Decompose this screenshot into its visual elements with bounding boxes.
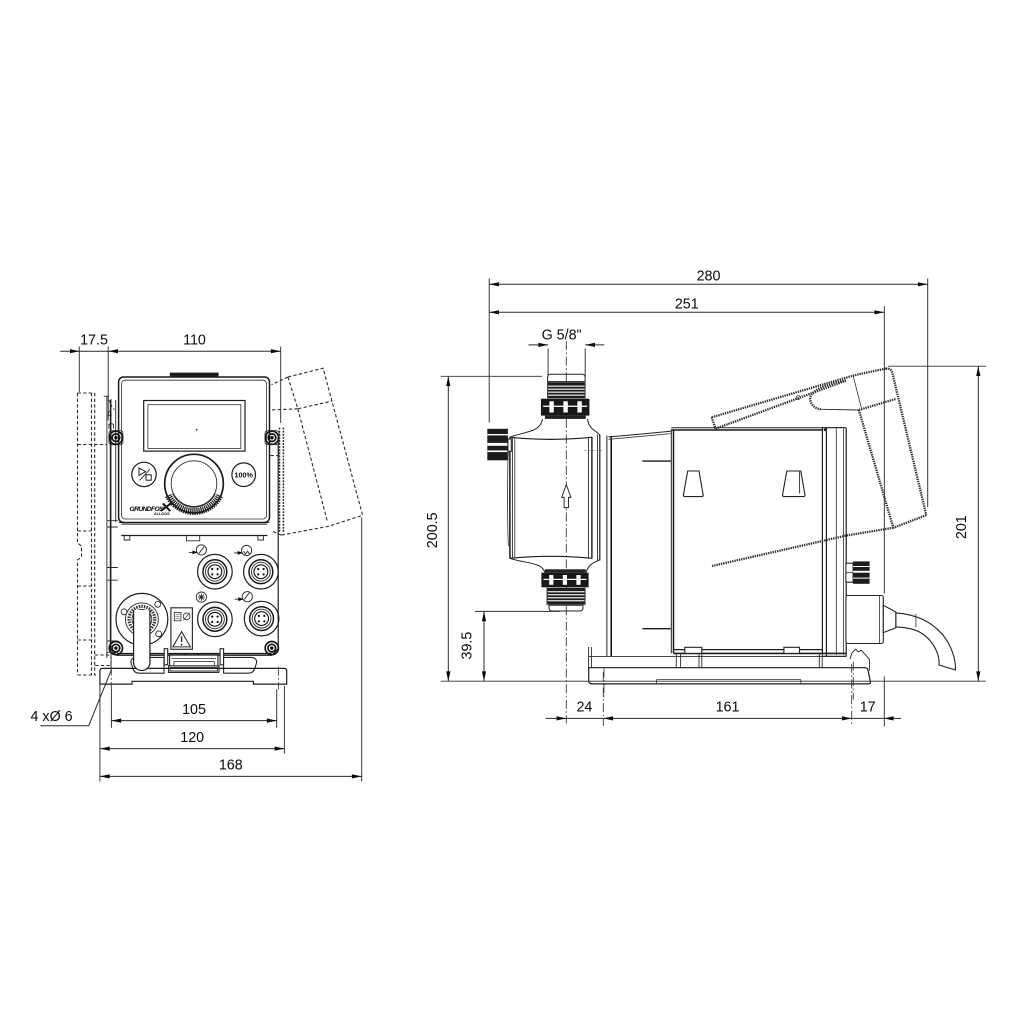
svg-text:17: 17 [860,700,876,716]
svg-text:161: 161 [716,700,740,716]
svg-text:4 xØ 6: 4 xØ 6 [31,709,73,725]
svg-text:201: 201 [954,515,970,539]
svg-text:39.5: 39.5 [460,632,476,660]
svg-text:24: 24 [576,700,592,716]
svg-text:100%: 100% [235,470,254,479]
svg-text:110: 110 [183,333,206,349]
svg-text:200.5: 200.5 [425,512,441,548]
svg-text:105: 105 [182,702,206,718]
svg-text:251: 251 [675,296,699,312]
svg-text:280: 280 [697,268,721,284]
svg-text:G 5/8": G 5/8" [542,327,582,343]
svg-text:17.5: 17.5 [80,333,108,349]
svg-text:ALLDOS: ALLDOS [154,512,170,516]
svg-text:120: 120 [180,730,204,746]
svg-text:168: 168 [219,758,243,774]
